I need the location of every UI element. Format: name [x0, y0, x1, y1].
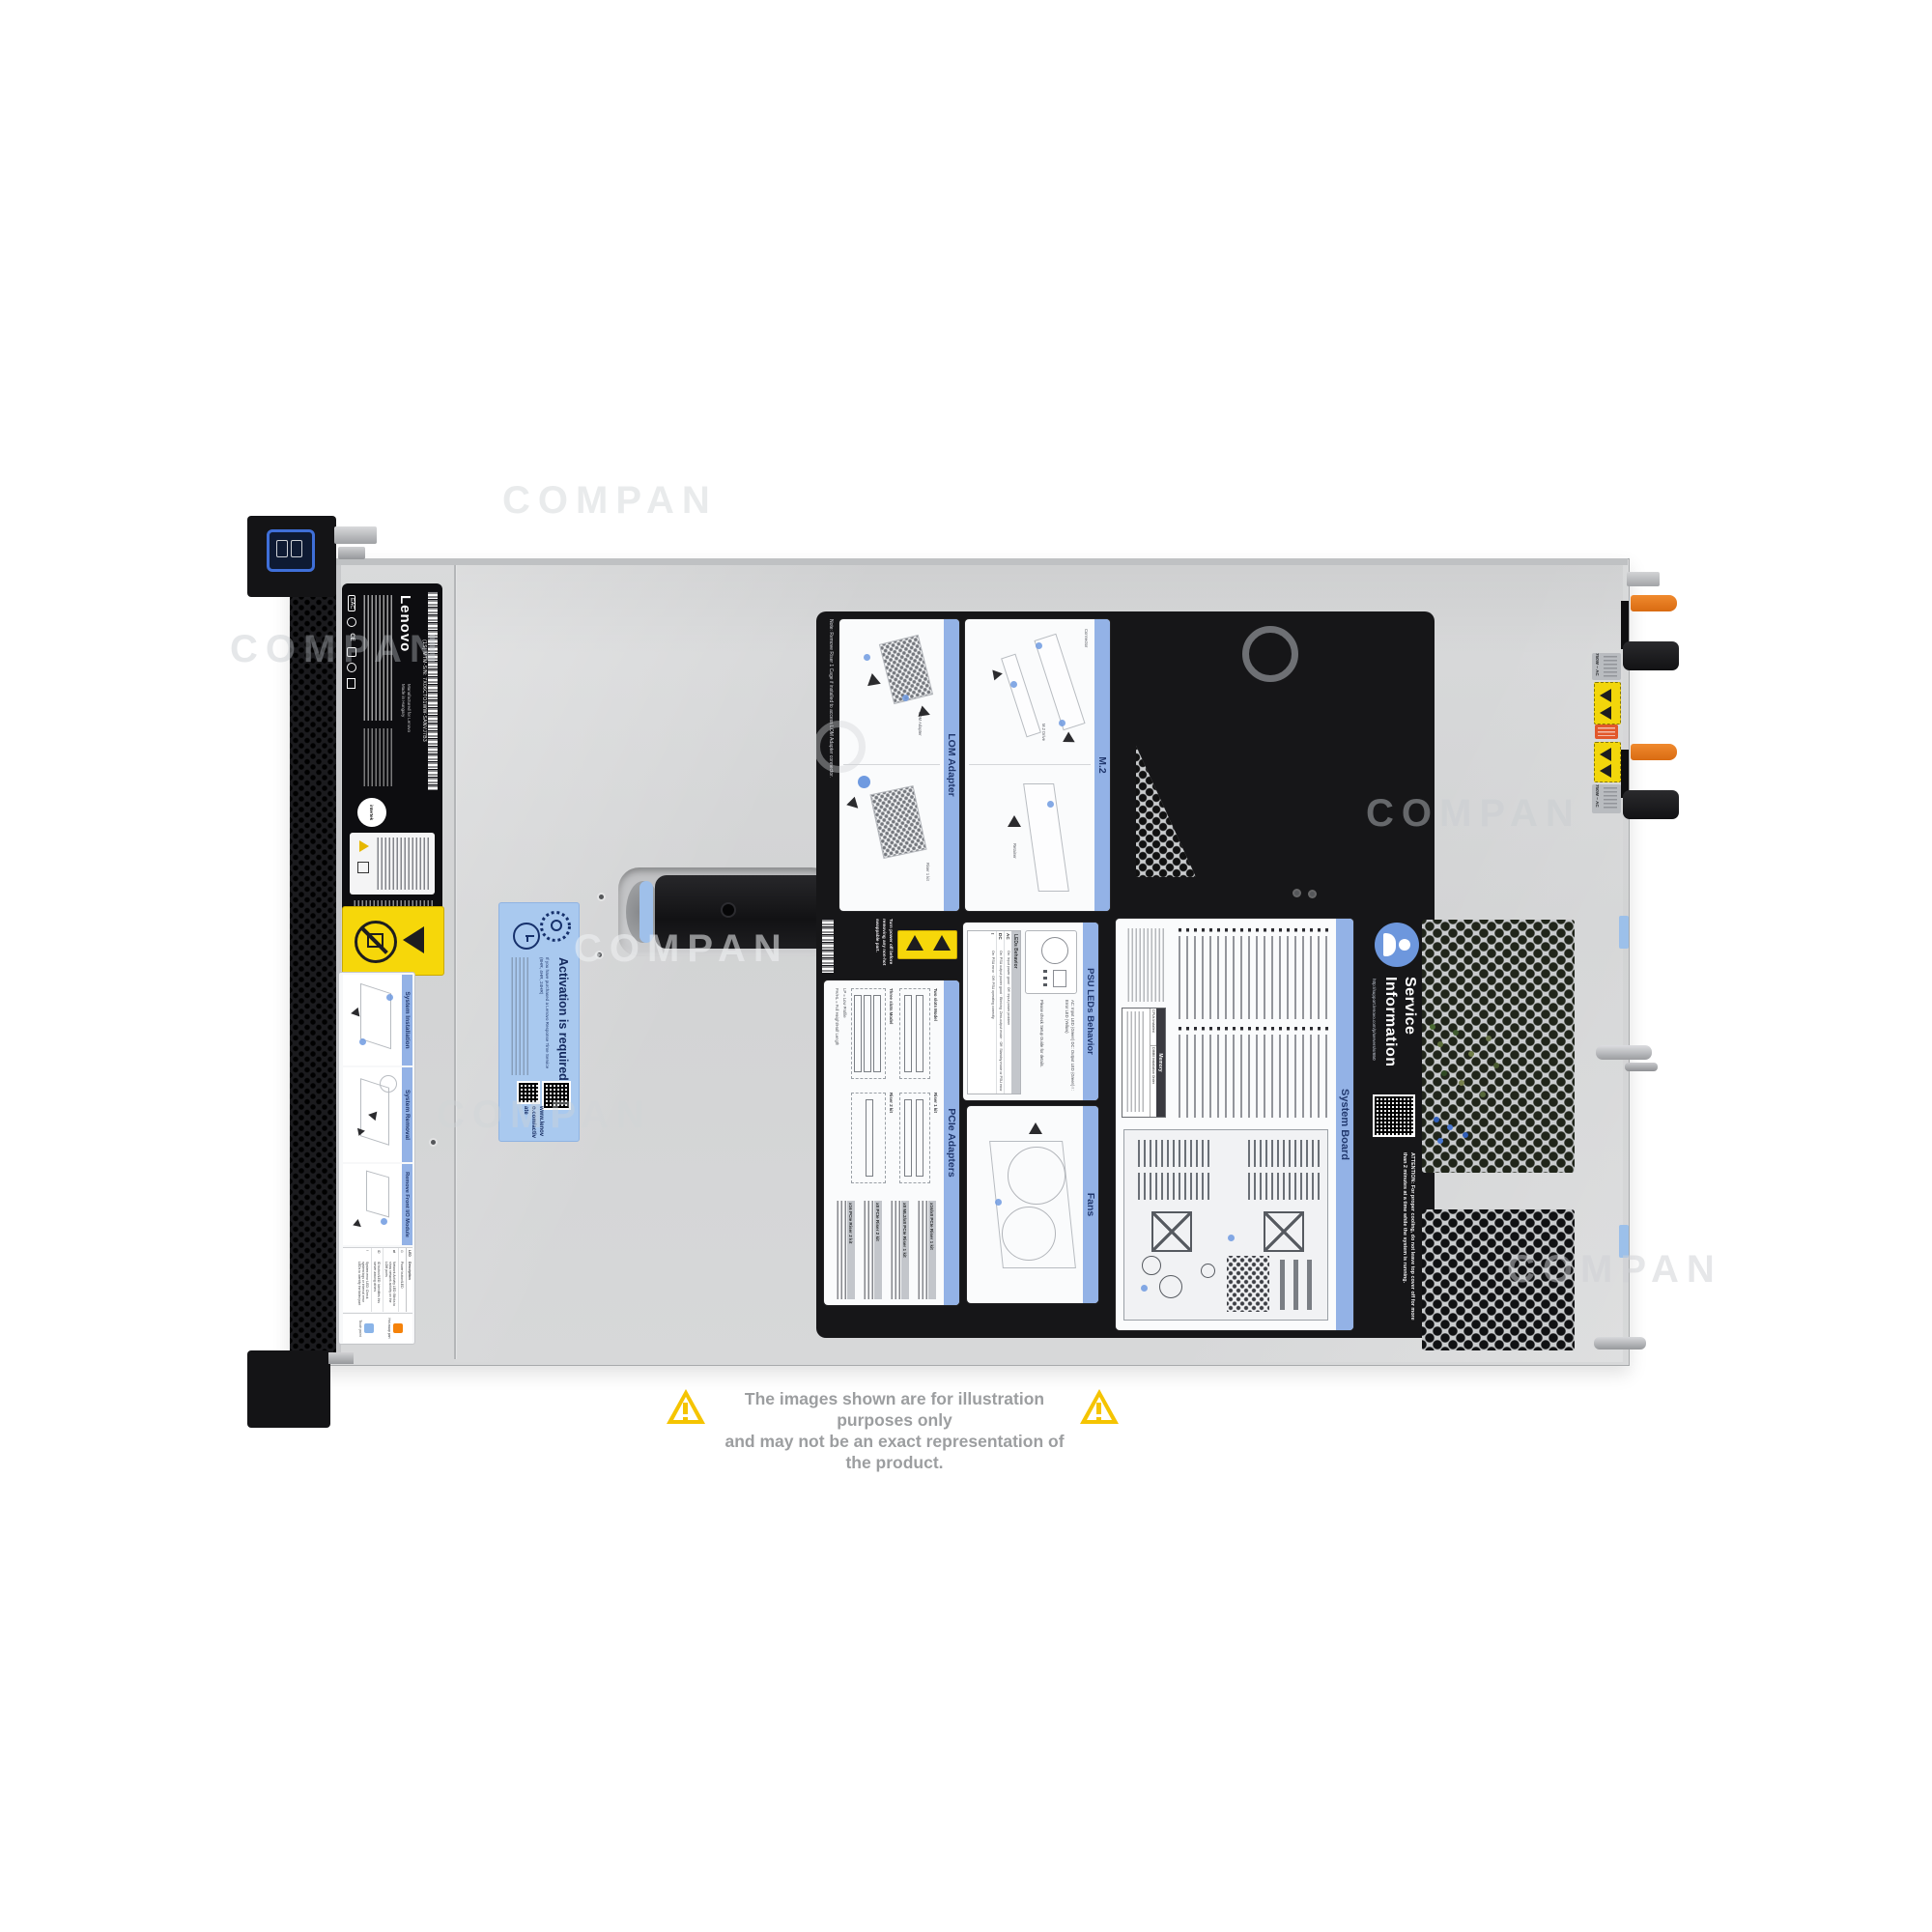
cert-icon-row: EAC CE [346, 595, 357, 798]
psu-socket [1053, 970, 1066, 987]
shock-triangle [1600, 748, 1611, 761]
desc-col-header: Description [408, 1262, 412, 1280]
watermark-text: COMPAN [1366, 792, 1581, 836]
shock-triangle-2 [1600, 706, 1611, 720]
kit-micro-text [835, 1201, 846, 1299]
made-for-text: Manufactured for Lenovo Made in Hungary [400, 684, 412, 761]
slot-bar [866, 1099, 873, 1177]
connector-cluster [1227, 1256, 1269, 1312]
fan-circle [1159, 1275, 1182, 1298]
m2-caption-drive: M.2 Drive [1041, 724, 1046, 741]
watermark-text: COMPAN [230, 628, 445, 671]
kc-icon [348, 678, 356, 689]
psu-leds-title: PSU LEDs Behavior [1083, 923, 1098, 1100]
section-header: System Installation [402, 975, 412, 1065]
fans-card: Fans [967, 1106, 1098, 1303]
service-info-title: Service Information [1380, 977, 1419, 1067]
screw [431, 1140, 436, 1145]
board-note-micro-text [1127, 928, 1164, 1002]
diagram-arrow [846, 797, 867, 817]
watermark-text: COMPAN [437, 1094, 652, 1137]
dimm-bank [1134, 1173, 1209, 1200]
slot-bar [864, 995, 871, 1072]
pcie-slot-bar [1293, 1260, 1298, 1310]
kit-micro-text [889, 1201, 900, 1299]
made-line2: Made in Hungary [401, 684, 406, 717]
kit-header: x8 PCIe Riser 2 kit [874, 1201, 882, 1299]
led-icon: ⇄ [384, 1250, 396, 1262]
m2-caption-connector: Connector [1084, 629, 1089, 647]
rating-micro [1604, 656, 1617, 677]
psu-vent-upper [1422, 920, 1575, 1173]
touch-point-dot [1010, 681, 1017, 688]
service-info-url: http://support.lenovo.com/p/servers/sr65… [1372, 979, 1377, 1087]
diagram-arrow [987, 669, 1003, 687]
component-list-col2 [1174, 1027, 1328, 1120]
kit-block-3: x8 PCIe Riser 2 kit [862, 1201, 882, 1299]
gear-icon [540, 911, 571, 942]
panel-barcode [822, 919, 834, 973]
touch-point-dot [995, 1199, 1002, 1206]
touch-point-dot [359, 1038, 366, 1045]
touch-point-swatch [364, 1323, 374, 1333]
psu-led-dots [1043, 970, 1047, 987]
watermark-text: COMPAN [574, 927, 789, 971]
psu-leds-card: PSU LEDs Behavior AC: Input LED (Green) … [963, 923, 1098, 1100]
diagram-circle [380, 1075, 397, 1093]
activation-note: If you have purchased a Lenovo Response … [537, 957, 550, 1075]
touch-point-dot [1047, 801, 1054, 808]
watermark-logo [813, 721, 866, 773]
kit-micro-text [916, 1201, 927, 1299]
system-board-title: System Board [1336, 919, 1353, 1330]
psu-led-cell: ! [989, 931, 996, 949]
touch-point-dot [1141, 1285, 1148, 1292]
fans-title: Fans [1083, 1106, 1098, 1303]
cpu2-socket [1264, 1211, 1304, 1252]
two-slots-label: Two slots Model [933, 988, 938, 1021]
power-warning-label [897, 930, 957, 959]
pcie-adapters-card: PCIe Adapters Two slots Model Riser 1 ki… [824, 980, 959, 1305]
psu-vent-color-accents [1430, 1024, 1435, 1030]
m2-drive-shape [1001, 654, 1041, 738]
service-title-line1: Service [1400, 977, 1419, 1067]
m2-card: M.2 Connector M.2 Drive Retainer [965, 619, 1110, 911]
power-warning-text: Turn power off before removing any non-h… [873, 919, 894, 969]
edge-latch-screw [1625, 1063, 1658, 1071]
service-person-head [1399, 939, 1410, 951]
diagram-arrow [1063, 732, 1083, 751]
triangle-exclamation [1096, 1403, 1101, 1414]
intertek-badge: intertek [357, 798, 386, 827]
riser2-kit-box [851, 1093, 886, 1183]
pcie-title: PCIe Adapters [944, 980, 959, 1305]
psu-fan-circle [1041, 937, 1068, 964]
slot-bar [854, 995, 862, 1072]
three-slots-label: Three slots Model [889, 988, 894, 1024]
psu-desc-cell: On: PSU output power good · Blinking: Ze… [997, 949, 1004, 1094]
slot-bar [904, 1099, 912, 1177]
m2-caption-retainer: Retainer [1012, 843, 1017, 859]
regulatory-micro-text-2 [361, 728, 392, 786]
disclaimer-warning-triangle-right [1080, 1389, 1119, 1424]
mini-cert-square [357, 862, 369, 873]
slot-bar [904, 995, 912, 1072]
hot-swap-label: Hot-swap part [387, 1316, 391, 1341]
slot-bar [916, 1099, 923, 1177]
service-title-line2: Information [1380, 977, 1400, 1067]
cover-seam [454, 565, 456, 1359]
board-diagram [1123, 1129, 1328, 1321]
riser1-kit-label: Riser 1 kit [933, 1093, 938, 1113]
led-col-header: LED [408, 1250, 412, 1262]
edge-latch [1596, 1045, 1652, 1060]
info-box-micro-text [375, 838, 429, 890]
edge-latch [1594, 1337, 1646, 1350]
label-info-box [350, 833, 435, 895]
rear-warning-label-yellow [1594, 742, 1621, 782]
rail-bracket [334, 526, 377, 544]
rear-corner-tab [1627, 572, 1660, 586]
kit-block-4: x16 PCIe Riser 2 kit [835, 1201, 855, 1299]
riser2-box [851, 988, 886, 1079]
psu-handle[interactable] [1623, 641, 1679, 670]
section-system-installation: System Installation [343, 975, 412, 1065]
legend-box: Hot-swap part Touch point [343, 1313, 412, 1343]
kit-micro-text [862, 1201, 873, 1299]
serial-barcode-text: (1S) MTM-S/N: 7X06CTO1WW-SANVJ7B3 [421, 591, 427, 790]
psu-rating-text: 750W ~ AC [1595, 784, 1600, 808]
touch-point-dot [864, 654, 870, 661]
psu-release-tab-orange[interactable] [1631, 744, 1677, 760]
touch-point-dot [1228, 1235, 1235, 1241]
psu-led-cell: AC [1005, 931, 1011, 949]
watermark-logo [1242, 626, 1298, 682]
warning-bolt-triangle [933, 935, 951, 951]
psu-rating-label: 750W ~ AC [1592, 784, 1621, 813]
vent-hole [1310, 892, 1315, 896]
ear-id-glyphs-2 [291, 540, 302, 557]
psu-release-tab-orange[interactable] [1631, 595, 1677, 611]
section-remove-front-io: Remove Front I/O Module [343, 1164, 412, 1245]
watermark-text: COMPAN [1507, 1248, 1722, 1292]
component-list-col1 [1174, 928, 1328, 1021]
diagram-arrow [1029, 1116, 1042, 1134]
clock-icon [513, 923, 540, 950]
slot-bar [873, 995, 881, 1072]
touch-point-dot [1036, 642, 1042, 649]
orange-label-micro [1598, 727, 1615, 736]
psu-rating-text: 750W ~ AC [1595, 653, 1600, 676]
rear-label-orange [1595, 724, 1618, 739]
latch-screw [723, 904, 734, 916]
memory-col1-header: CPUs Installed [1151, 1009, 1156, 1046]
triangle-exclamation-dot [1096, 1417, 1101, 1421]
rail-bracket-2 [338, 547, 365, 559]
shock-triangle-2 [1600, 764, 1611, 778]
section-system-removal: System Removal [343, 1067, 412, 1162]
service-qr-code [1373, 1094, 1415, 1137]
led-icon: ! [357, 1250, 369, 1262]
section-header: Remove Front I/O Module [402, 1164, 412, 1245]
triangle-exclamation [683, 1403, 688, 1414]
system-board-card: System Board Memory CPUs Installed DIMM … [1116, 919, 1353, 1330]
rating-micro [1604, 787, 1617, 810]
rear-warning-label-yellow [1594, 682, 1621, 724]
no-lift-icon [355, 921, 397, 963]
led-row-text: Network Activity LED: Blinks to show net… [384, 1262, 396, 1310]
rack-ear-bottom [247, 1350, 330, 1428]
lp-footnote: LP = Low Profile [842, 988, 847, 1018]
diagram-arrow [353, 1219, 367, 1233]
activation-title: Activation is required [556, 957, 570, 1087]
dimm-bank [1134, 1140, 1209, 1167]
led-row-text: Power button/LED [400, 1262, 404, 1310]
memory-rows [1126, 1011, 1144, 1112]
handling-warning-label [342, 906, 444, 976]
psu-legend-text: AC: Input LED (Green) DC: Output LED (Gr… [1063, 1000, 1075, 1093]
touch-point-dot [386, 994, 393, 1001]
triangle-exclamation-dot [683, 1417, 688, 1421]
fan-circle [1142, 1256, 1161, 1275]
ear-id-glyphs [276, 540, 288, 557]
riser2-kit-label: Riser 2 kit [889, 1093, 894, 1113]
cpu1-socket [1151, 1211, 1192, 1252]
lom-screw-knob [858, 776, 870, 788]
service-info-icon [1375, 923, 1419, 967]
disclaimer-line2: and may not be an exact representation o… [715, 1432, 1074, 1474]
pcie-slot-bar [1307, 1260, 1312, 1310]
diagram-arrow [354, 1128, 365, 1142]
diagram-arrow [1008, 809, 1021, 827]
lom-heatsink-2 [869, 785, 926, 859]
eac-icon: EAC [348, 595, 355, 611]
led-icon: ID [373, 1250, 381, 1262]
psu-rating-label: 750W ~ AC [1592, 653, 1621, 680]
kit-block-1: x16/x8 PCIe Riser 1 kit [916, 1201, 936, 1299]
diagram-arrow [858, 673, 881, 696]
lom-caption-2: Riser 1 kit [925, 863, 930, 881]
kit-block-2: x8 ML2/x8 PCIe Riser 1 kit [889, 1201, 909, 1299]
attention-text: ATTENTION: For proper cooling, do not le… [1400, 1152, 1415, 1326]
dimm-bank [1244, 1173, 1320, 1200]
watermark-text: COMPAN [502, 479, 718, 523]
led-description-table: LED Description ⏻ Power button/LED ⇄ Net… [343, 1247, 412, 1312]
warning-excl-triangle [906, 935, 923, 951]
warning-triangle-icon [403, 926, 424, 953]
kit-header: x8 ML2/x8 PCIe Riser 1 kit [901, 1201, 909, 1299]
psu-legend-note: Please check Setup Guide for details. [1039, 1000, 1044, 1093]
rail-bracket-bottom [328, 1352, 354, 1364]
slot-bar [916, 995, 923, 1072]
m2-riser-shape [1034, 634, 1085, 731]
psu-rear-illustration [1025, 930, 1077, 994]
led-row-text: ID button/LED: Identifies this server am… [373, 1262, 381, 1310]
serial-barcode [428, 591, 438, 790]
pcie-slot-bar [1280, 1260, 1285, 1310]
psu-handle[interactable] [1623, 790, 1679, 819]
disclaimer-text: The images shown are for illustration pu… [715, 1389, 1074, 1474]
activation-micro-text [509, 957, 528, 1075]
kit-header: x16/x8 PCIe Riser 1 kit [928, 1201, 936, 1299]
led-icon: ⏻ [400, 1250, 404, 1262]
product-photo-stage: (1S) MTM-S/N: 7X06CTO1WW-SANVJ7B3 Lenovo… [0, 0, 1932, 1932]
service-label-panel: Service Information http://support.lenov… [816, 611, 1435, 1338]
battery-circle [1201, 1264, 1215, 1278]
memory-col2-header: DIMM Installation Order [1151, 1046, 1156, 1117]
m2-title: M.2 [1094, 619, 1110, 911]
hot-swap-swatch [393, 1323, 403, 1333]
clock-hand-2 [526, 935, 528, 942]
shock-triangle [1600, 689, 1611, 702]
gear-hub [551, 920, 562, 931]
touch-point-dot [1059, 720, 1065, 726]
touch-point-dot [381, 1218, 387, 1225]
front-service-card: System Installation System Removal Remov… [338, 972, 415, 1345]
psu-table-header: LEDs Behavior [1011, 931, 1020, 1094]
fan-frame [989, 1141, 1076, 1268]
disclaimer-line1: The images shown are for illustration pu… [715, 1389, 1074, 1432]
psu-desc-cell: On: Input power good · Off: Input power … [1005, 949, 1011, 1094]
psu-led-table: LEDs Behavior AC On: Input power good · … [967, 930, 1021, 1094]
recycle-icon [347, 617, 356, 627]
dimm-bank [1244, 1140, 1320, 1167]
intertek-text: intertek [370, 805, 375, 820]
psu-desc-cell: On: PSU error · Off: PSU operating corre… [989, 949, 996, 1094]
m2-tray-shape [1023, 783, 1069, 892]
no-lift-box [367, 933, 384, 948]
diagram-shape [366, 1171, 389, 1218]
psu-led-cell: DC [997, 931, 1004, 949]
riser1-kit-box [899, 1093, 930, 1183]
mini-warning-triangle [359, 840, 369, 852]
fh-footnote: FH/HL = Full Height/Half Length [835, 988, 839, 1045]
edge-clip-blue [1619, 916, 1629, 949]
memory-table: Memory CPUs Installed DIMM Installation … [1122, 1008, 1166, 1118]
touch-point-dot [902, 695, 909, 701]
front-bezel-vent [290, 565, 336, 1359]
lom-title: LOM Adapter [944, 619, 959, 911]
touch-point-label: Touch point [358, 1316, 362, 1341]
riser1-box [899, 988, 930, 1079]
made-line1: Manufactured for Lenovo [407, 684, 412, 732]
led-row-text: System error LED: Check system logs or i… [357, 1262, 369, 1310]
disclaimer-warning-triangle-left [667, 1389, 705, 1424]
chassis-top-edge [290, 558, 1628, 565]
vent-hole [1294, 891, 1299, 895]
m2-divider [969, 764, 1091, 765]
kit-header: x16 PCIe Riser 2 kit [847, 1201, 855, 1299]
section-header: System Removal [402, 1067, 412, 1162]
service-person-body [1383, 933, 1396, 956]
screw [599, 895, 604, 899]
memory-table-title: Memory [1156, 1009, 1165, 1117]
